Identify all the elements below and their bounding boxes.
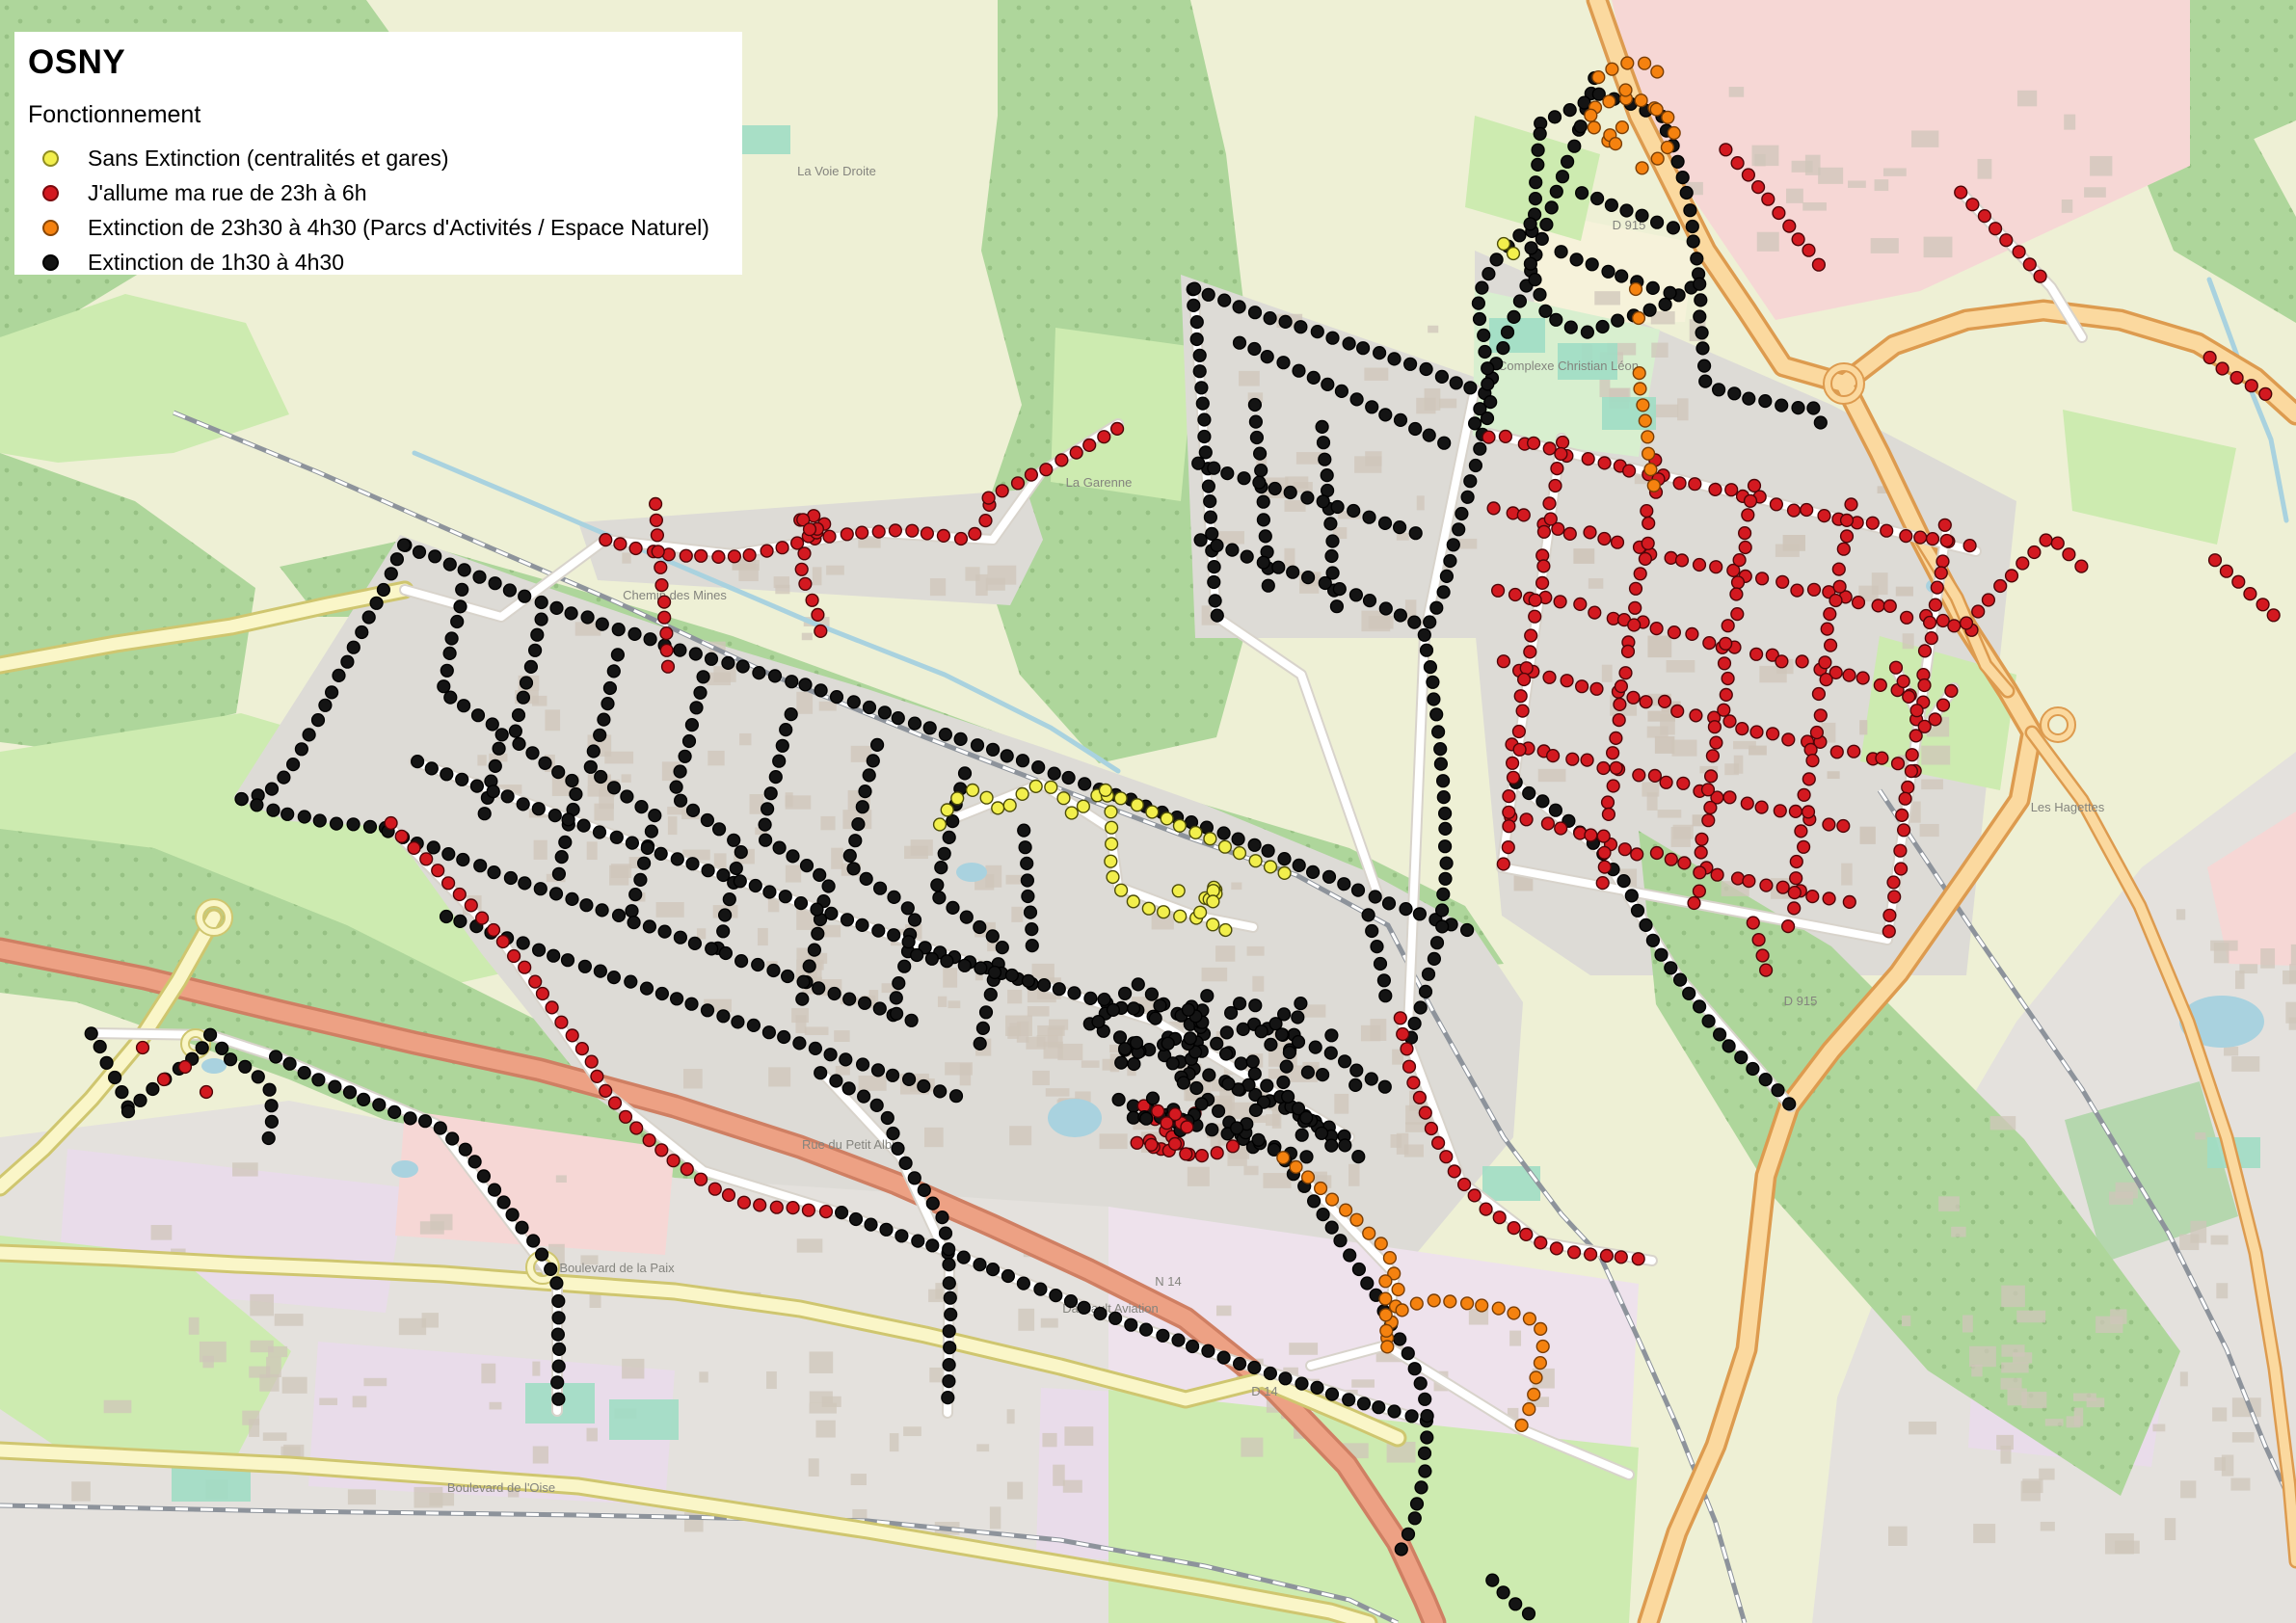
light-dot-red — [1651, 847, 1664, 860]
building — [831, 848, 843, 869]
legend-panel: OSNY Fonctionnement Sans Extinction (cen… — [14, 32, 742, 275]
light-dot-black — [1582, 326, 1594, 338]
light-dot-black — [1264, 312, 1276, 325]
light-dot-orange — [1363, 1227, 1375, 1239]
light-dot-black — [879, 706, 892, 719]
light-dot-black — [1713, 384, 1725, 396]
light-dot-red — [643, 1134, 655, 1147]
light-dot-black — [1147, 1092, 1160, 1104]
light-dot-black — [1211, 609, 1223, 622]
building — [924, 1128, 944, 1147]
light-dot-black — [1349, 1079, 1362, 1092]
light-dot-yellow — [1057, 792, 1070, 805]
light-dot-black — [1188, 300, 1200, 312]
building — [1417, 495, 1425, 510]
building — [1860, 827, 1876, 844]
light-dot-black — [1206, 1124, 1218, 1136]
light-dot-black — [594, 729, 606, 741]
light-dot-black — [1149, 1012, 1161, 1024]
light-dot-red — [1529, 610, 1541, 623]
building — [987, 566, 1016, 585]
light-dot-red — [453, 889, 466, 901]
light-dot-black — [1361, 1277, 1374, 1290]
light-dot-red — [1806, 755, 1819, 767]
light-dot-red — [1722, 673, 1734, 685]
light-dot-black — [1568, 140, 1581, 152]
light-dot-black — [1441, 571, 1454, 583]
light-dot-orange — [1380, 1324, 1393, 1337]
light-dot-red — [1776, 575, 1789, 588]
light-dot-red — [1503, 820, 1515, 833]
light-dot-black — [553, 1344, 566, 1356]
light-dot-black — [1325, 1221, 1338, 1234]
light-dot-black — [1019, 841, 1031, 854]
light-dot-black — [443, 558, 456, 571]
light-dot-black — [414, 545, 426, 558]
light-dot-orange — [1642, 447, 1655, 460]
light-dot-orange — [1350, 1213, 1363, 1226]
building — [151, 1225, 173, 1240]
light-dot-black — [533, 944, 546, 956]
building — [609, 865, 628, 886]
light-dot-black — [529, 644, 542, 656]
building — [836, 1066, 850, 1076]
light-dot-black — [1119, 987, 1132, 999]
light-dot-black — [943, 1325, 955, 1338]
light-dot-orange — [1662, 142, 1674, 154]
light-dot-red — [1585, 829, 1597, 841]
building — [2211, 1236, 2229, 1245]
light-dot-red — [1866, 517, 1879, 529]
building — [976, 1444, 989, 1451]
light-dot-black — [319, 699, 332, 711]
light-dot-black — [607, 665, 620, 678]
map-stage: La GarenneLa Voie DroiteChemin des Mines… — [0, 0, 2296, 1623]
light-dot-black — [943, 1359, 955, 1371]
light-dot-black — [944, 1291, 956, 1304]
light-dot-black — [674, 765, 686, 778]
light-dot-black — [911, 949, 923, 962]
light-dot-red — [1694, 885, 1706, 897]
light-dot-red — [1756, 572, 1769, 585]
light-dot-red — [1710, 561, 1722, 573]
light-dot-red — [1927, 533, 1939, 545]
light-dot-black — [847, 696, 860, 708]
light-dot-black — [1339, 1055, 1351, 1068]
light-dot-yellow — [1161, 812, 1173, 825]
light-dot-red — [1615, 680, 1628, 693]
building — [594, 804, 613, 821]
building — [2096, 1317, 2122, 1333]
light-dot-red — [1919, 645, 1932, 657]
building — [1602, 665, 1613, 682]
light-dot-black — [1409, 527, 1422, 540]
light-dot-orange — [1668, 127, 1680, 140]
light-dot-black — [899, 1157, 912, 1170]
legend-dot-black-icon — [42, 254, 59, 271]
light-dot-red — [1549, 480, 1562, 492]
map-label: Boulevard de la Paix — [559, 1261, 675, 1275]
light-dot-black — [759, 818, 771, 831]
light-dot-black — [1640, 919, 1652, 932]
light-dot-black — [926, 1197, 939, 1210]
light-dot-red — [1669, 626, 1681, 639]
light-dot-black — [654, 848, 667, 861]
building — [1243, 1166, 1258, 1176]
light-dot-black — [814, 1067, 827, 1079]
light-dot-red — [600, 1085, 612, 1098]
light-dot-black — [1198, 413, 1211, 426]
light-dot-black — [795, 897, 808, 910]
light-dot-black — [1255, 465, 1268, 477]
light-dot-black — [518, 691, 530, 704]
light-dot-red — [1902, 782, 1914, 794]
light-dot-black — [1316, 1127, 1328, 1139]
light-dot-orange — [1637, 399, 1649, 412]
light-dot-black — [1486, 1574, 1499, 1586]
light-dot-black — [1350, 393, 1363, 406]
light-dot-black — [1318, 437, 1330, 449]
light-dot-yellow — [951, 792, 964, 805]
light-dot-black — [824, 1049, 837, 1061]
light-dot-black — [1132, 978, 1144, 991]
light-dot-black — [1154, 999, 1166, 1012]
light-dot-red — [1529, 594, 1541, 606]
light-dot-black — [702, 865, 714, 877]
light-dot-yellow — [992, 802, 1004, 814]
building — [2180, 1480, 2196, 1498]
light-dot-red — [2209, 554, 2222, 567]
light-dot-black — [656, 988, 669, 1000]
light-dot-black — [1555, 246, 1567, 258]
light-dot-black — [570, 788, 582, 801]
building — [477, 755, 486, 765]
light-dot-black — [1434, 743, 1447, 756]
light-dot-red — [1557, 437, 1569, 449]
light-dot-black — [890, 992, 902, 1004]
light-dot-red — [1590, 682, 1603, 695]
light-dot-black — [809, 944, 821, 956]
light-dot-black — [892, 1142, 904, 1155]
light-dot-red — [776, 542, 788, 554]
light-dot-black — [489, 760, 501, 773]
light-dot-orange — [1588, 121, 1600, 134]
light-dot-black — [1249, 306, 1262, 319]
light-dot-black — [566, 775, 578, 787]
building — [1642, 782, 1659, 796]
light-dot-black — [893, 977, 905, 990]
building — [668, 816, 678, 835]
building — [1215, 945, 1235, 961]
light-dot-black — [697, 671, 709, 683]
light-dot-black — [1202, 288, 1215, 301]
building — [2001, 1378, 2022, 1390]
light-dot-black — [1128, 1002, 1140, 1015]
light-dot-black — [822, 880, 835, 892]
light-dot-black — [895, 1230, 908, 1242]
light-dot-black — [974, 1259, 986, 1271]
light-dot-red — [1979, 210, 1991, 223]
light-dot-red — [1503, 790, 1515, 803]
light-dot-black — [1602, 265, 1615, 278]
light-dot-red — [1823, 892, 1835, 905]
light-dot-yellow — [1174, 910, 1187, 922]
building — [2214, 1457, 2225, 1471]
light-dot-black — [1201, 990, 1214, 1002]
building — [739, 733, 751, 745]
light-dot-red — [1561, 675, 1573, 687]
light-dot-black — [1420, 986, 1432, 998]
light-dot-black — [1295, 998, 1307, 1010]
light-dot-black — [752, 959, 764, 971]
light-dot-red — [609, 1097, 622, 1109]
light-dot-red — [1903, 691, 1915, 704]
light-dot-black — [1439, 808, 1452, 820]
light-dot-black — [646, 825, 658, 838]
light-dot-black — [388, 1106, 401, 1119]
light-dot-black — [841, 914, 854, 926]
light-dot-red — [1650, 623, 1663, 635]
light-dot-black — [262, 1132, 275, 1145]
building — [2062, 200, 2072, 213]
light-dot-red — [1690, 709, 1702, 722]
light-dot-black — [989, 967, 1001, 979]
building — [809, 1458, 819, 1477]
light-dot-black — [1250, 415, 1263, 428]
light-dot-red — [1938, 519, 1951, 531]
light-dot-black — [1436, 920, 1449, 933]
light-dot-black — [1218, 294, 1231, 306]
light-dot-black — [1183, 1003, 1195, 1016]
light-dot-black — [1404, 358, 1417, 370]
light-dot-black — [908, 1172, 921, 1184]
building — [815, 1421, 835, 1438]
light-dot-black — [776, 739, 788, 752]
building — [1538, 769, 1566, 782]
light-dot-red — [1419, 1106, 1431, 1119]
building — [2285, 1002, 2296, 1024]
building — [1859, 720, 1867, 734]
legend-heading: Fonctionnement — [28, 101, 725, 129]
light-dot-red — [1574, 599, 1587, 611]
light-dot-black — [945, 1309, 957, 1321]
light-dot-black — [1254, 447, 1267, 460]
building — [820, 816, 835, 830]
building — [189, 1317, 200, 1335]
light-dot-red — [812, 609, 824, 622]
light-dot-black — [867, 755, 879, 767]
light-dot-red — [2063, 548, 2075, 561]
light-dot-black — [974, 921, 986, 934]
light-dot-red — [1820, 674, 1832, 686]
light-dot-red — [1614, 699, 1626, 711]
building — [1064, 1426, 1093, 1446]
light-dot-red — [1756, 949, 1769, 962]
light-dot-black — [1694, 1000, 1706, 1013]
light-dot-black — [1379, 409, 1392, 421]
light-dot-black — [728, 834, 740, 846]
light-dot-red — [743, 549, 756, 562]
light-dot-black — [1362, 909, 1375, 921]
building — [1046, 1088, 1070, 1097]
light-dot-red — [600, 534, 612, 546]
light-dot-red — [1543, 497, 1556, 510]
building — [263, 1432, 287, 1441]
light-dot-black — [1550, 185, 1562, 198]
building — [1962, 1315, 1973, 1332]
light-dot-black — [454, 600, 467, 613]
light-dot-red — [1576, 680, 1589, 693]
light-dot-red — [2232, 575, 2245, 588]
light-dot-black — [685, 998, 698, 1010]
building — [1361, 1025, 1380, 1041]
light-dot-red — [1538, 525, 1551, 538]
building — [71, 1481, 91, 1501]
light-dot-black — [1128, 1058, 1140, 1071]
light-dot-black — [456, 773, 468, 785]
light-dot-black — [489, 1184, 501, 1196]
light-dot-black — [864, 702, 876, 714]
building — [1828, 771, 1840, 779]
light-dot-yellow — [1105, 806, 1117, 818]
light-dot-black — [1545, 201, 1558, 214]
building — [532, 1362, 540, 1376]
light-dot-black — [1418, 628, 1430, 641]
building — [2176, 909, 2185, 919]
building — [2045, 1419, 2064, 1425]
light-dot-red — [1821, 623, 1833, 635]
light-dot-black — [1255, 1025, 1268, 1038]
light-dot-black — [1053, 983, 1065, 996]
light-dot-red — [1963, 540, 1976, 552]
light-dot-red — [1622, 646, 1635, 658]
light-dot-black — [1759, 1074, 1772, 1086]
light-dot-black — [457, 854, 469, 866]
light-dot-red — [906, 524, 919, 537]
light-dot-black — [1532, 144, 1544, 156]
light-dot-black — [1311, 326, 1323, 338]
building — [834, 1030, 849, 1042]
light-dot-black — [1002, 1270, 1015, 1283]
building — [2001, 1286, 2025, 1308]
light-dot-black — [1439, 840, 1452, 853]
light-dot-red — [1026, 468, 1038, 481]
light-dot-black — [1323, 870, 1336, 883]
building — [2064, 115, 2075, 130]
light-dot-black — [723, 893, 735, 906]
light-dot-red — [1632, 1253, 1644, 1265]
light-dot-black — [1427, 676, 1439, 688]
light-dot-black — [565, 607, 577, 620]
light-dot-black — [734, 846, 747, 859]
light-dot-black — [1211, 1038, 1223, 1051]
light-dot-black — [1775, 399, 1788, 412]
light-dot-red — [1040, 464, 1053, 476]
light-dot-red — [1524, 646, 1536, 658]
light-dot-black — [934, 1085, 947, 1098]
light-dot-red — [1497, 858, 1509, 870]
light-dot-black — [1419, 1448, 1431, 1460]
light-dot-red — [2267, 609, 2280, 622]
light-dot-black — [478, 808, 491, 820]
light-dot-black — [773, 841, 786, 854]
building — [1734, 756, 1744, 774]
light-dot-black — [278, 771, 290, 784]
light-dot-black — [1395, 414, 1407, 427]
light-dot-red — [1509, 589, 1522, 601]
light-dot-yellow — [1115, 884, 1128, 896]
light-dot-red — [662, 660, 675, 673]
light-dot-orange — [1634, 383, 1646, 395]
light-dot-red — [1811, 727, 1824, 739]
light-dot-black — [670, 781, 682, 793]
building — [1509, 1331, 1521, 1346]
light-dot-black — [1108, 1004, 1120, 1017]
building — [797, 1238, 823, 1252]
light-dot-black — [706, 652, 718, 665]
light-dot-black — [1408, 616, 1421, 628]
light-dot-black — [858, 1090, 870, 1103]
light-dot-black — [1140, 1323, 1153, 1336]
light-dot-black — [887, 1069, 899, 1081]
light-dot-red — [1752, 181, 1765, 194]
light-dot-black — [552, 1328, 565, 1341]
light-dot-red — [1813, 688, 1826, 701]
light-dot-black — [1280, 1060, 1293, 1073]
pond — [956, 863, 987, 882]
light-dot-black — [1326, 1388, 1339, 1400]
light-dot-red — [1808, 583, 1821, 596]
light-dot-red — [1945, 685, 1958, 698]
building — [604, 752, 633, 764]
light-dot-yellow — [1016, 788, 1028, 801]
light-dot-red — [1743, 169, 1755, 181]
light-dot-black — [761, 803, 774, 815]
light-dot-red — [761, 545, 773, 557]
light-dot-red — [1492, 584, 1505, 597]
light-dot-black — [1683, 987, 1695, 999]
light-dot-red — [1555, 448, 1567, 461]
light-dot-yellow — [1508, 248, 1520, 260]
light-dot-red — [1520, 1229, 1533, 1241]
light-dot-black — [803, 960, 815, 972]
light-dot-black — [687, 805, 700, 817]
light-dot-black — [1268, 483, 1281, 495]
light-dot-black — [216, 1042, 228, 1054]
building — [1188, 1167, 1210, 1186]
light-dot-black — [732, 1016, 744, 1028]
light-dot-red — [1589, 606, 1601, 619]
building — [104, 1400, 132, 1413]
light-dot-red — [655, 1144, 668, 1157]
building — [938, 997, 947, 1007]
light-dot-black — [801, 860, 814, 872]
light-dot-yellow — [1207, 895, 1219, 908]
light-dot-red — [1660, 776, 1672, 788]
light-dot-black — [1284, 1047, 1296, 1059]
light-dot-black — [1295, 1129, 1308, 1141]
light-dot-red — [660, 644, 673, 656]
light-dot-black — [1190, 1082, 1203, 1095]
light-dot-black — [717, 925, 730, 938]
light-dot-black — [427, 841, 440, 854]
light-dot-black — [1428, 693, 1440, 705]
light-dot-black — [859, 785, 871, 798]
light-dot-black — [1440, 857, 1453, 869]
light-dot-red — [1131, 1136, 1143, 1149]
building — [556, 1175, 567, 1183]
light-dot-red — [1568, 1246, 1581, 1259]
